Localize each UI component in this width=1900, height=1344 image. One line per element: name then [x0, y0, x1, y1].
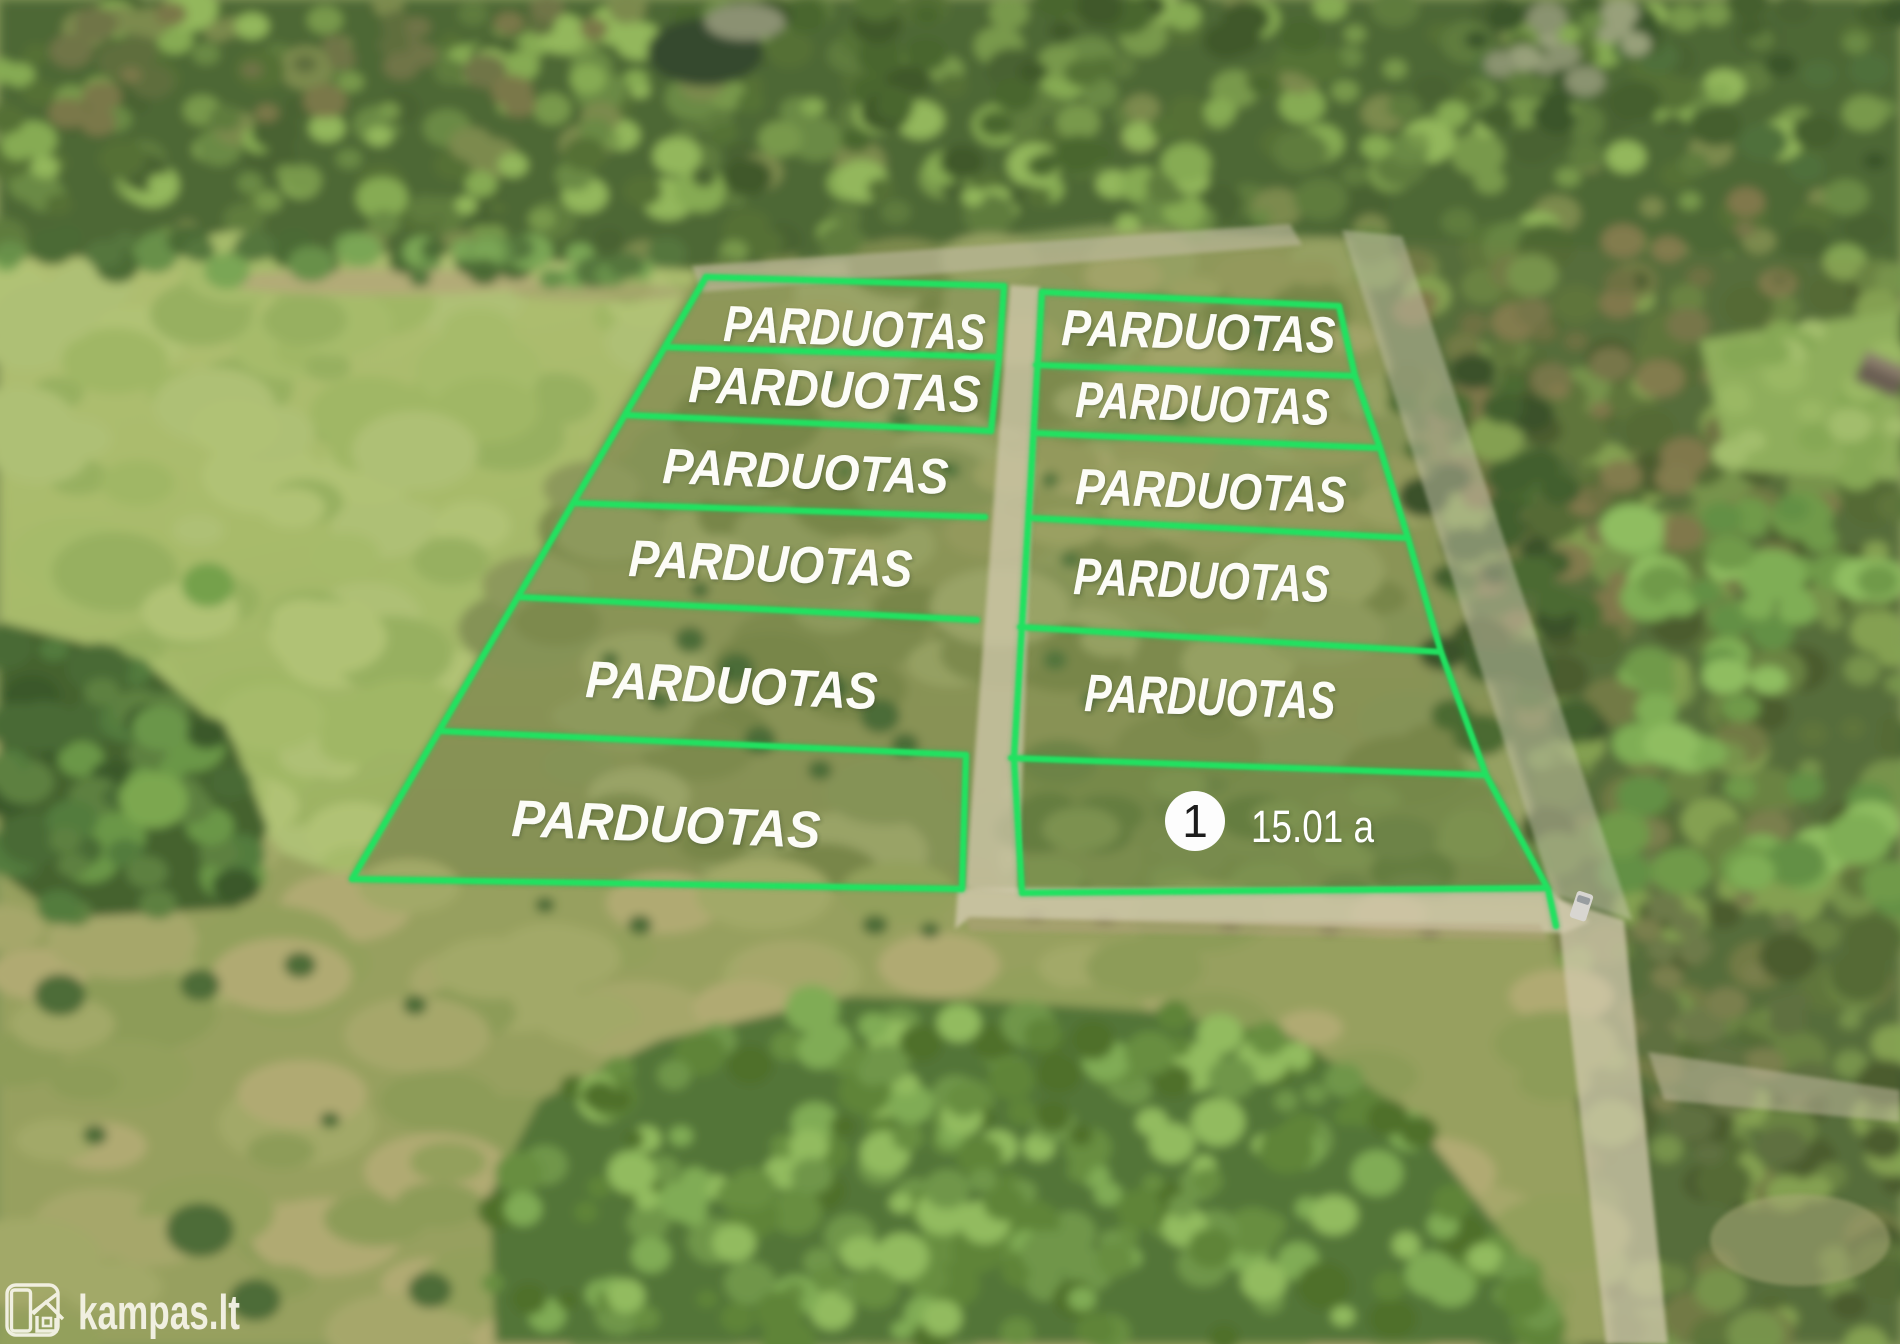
svg-text:PARDUOTAS: PARDUOTAS — [1061, 299, 1336, 364]
svg-text:PARDUOTAS: PARDUOTAS — [628, 530, 914, 599]
svg-text:PARDUOTAS: PARDUOTAS — [1075, 458, 1348, 523]
svg-text:PARDUOTAS: PARDUOTAS — [1084, 664, 1337, 731]
svg-text:15.01 a: 15.01 a — [1251, 801, 1375, 852]
svg-text:PARDUOTAS: PARDUOTAS — [1073, 548, 1331, 614]
svg-text:PARDUOTAS: PARDUOTAS — [662, 438, 950, 505]
svg-text:PARDUOTAS: PARDUOTAS — [723, 295, 987, 361]
svg-text:PARDUOTAS: PARDUOTAS — [511, 790, 822, 860]
svg-text:PARDUOTAS: PARDUOTAS — [1075, 371, 1331, 436]
svg-text:kampas.lt: kampas.lt — [78, 1286, 240, 1340]
svg-text:PARDUOTAS: PARDUOTAS — [688, 356, 982, 424]
svg-text:1: 1 — [1182, 795, 1208, 847]
svg-text:PARDUOTAS: PARDUOTAS — [584, 651, 878, 721]
